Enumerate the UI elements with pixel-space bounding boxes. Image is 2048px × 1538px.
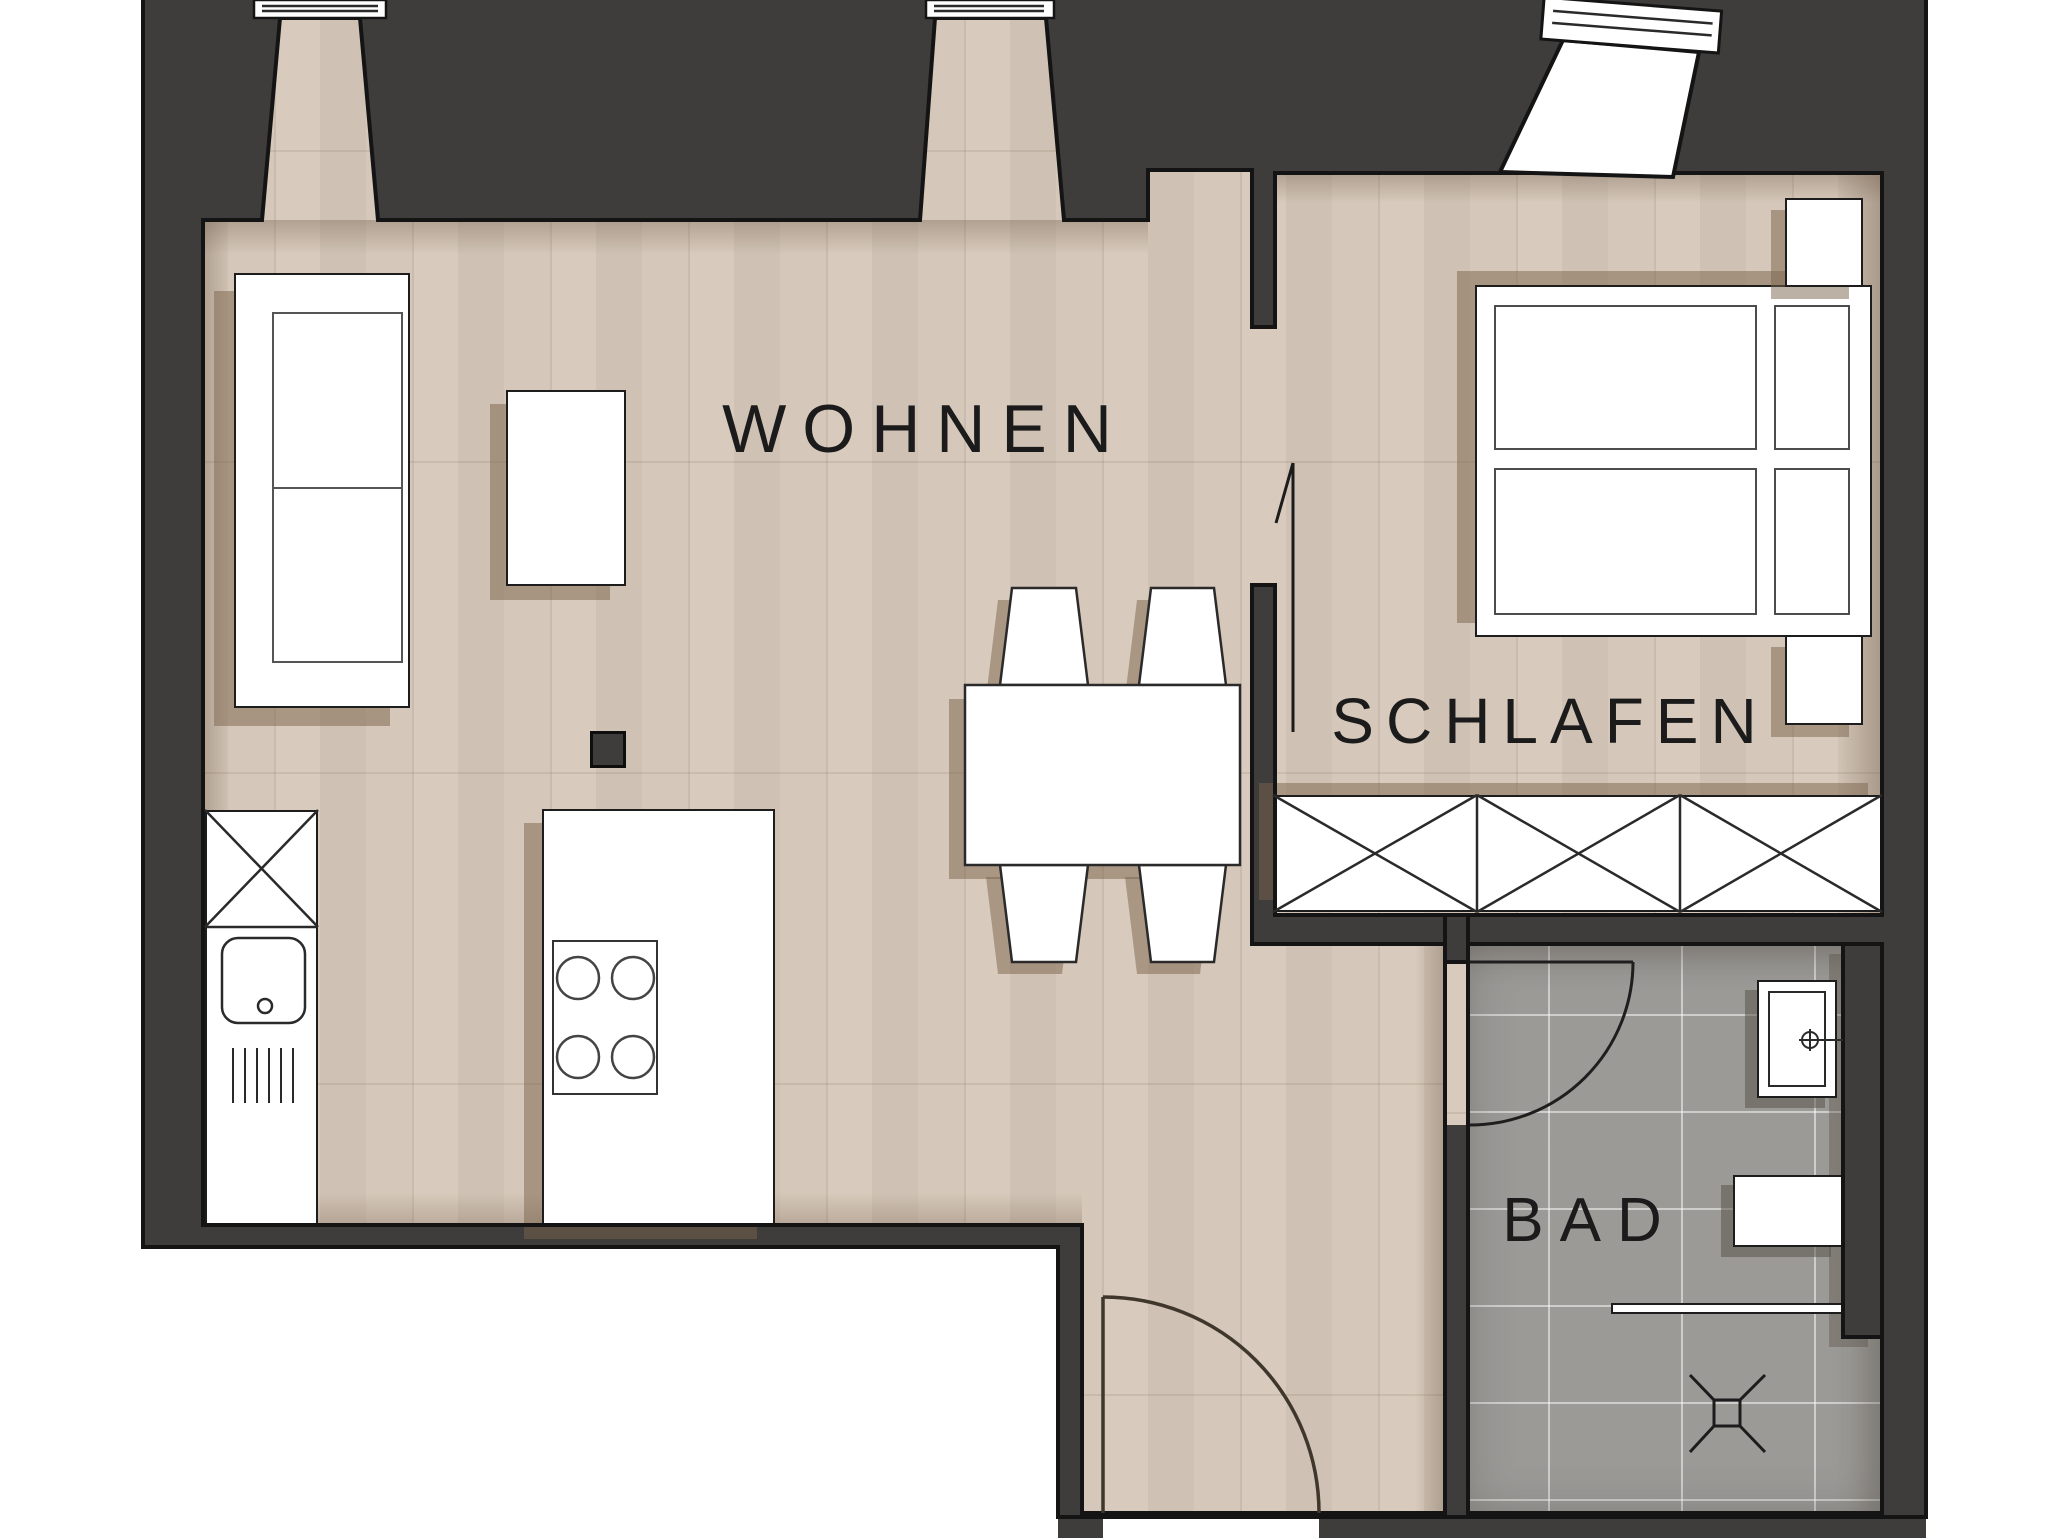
bath-pier-outline (1843, 944, 1882, 1337)
window-icon (254, 0, 386, 18)
room-label-bath: BAD (1502, 1190, 1677, 1252)
window-icon (926, 0, 1054, 18)
wardrobe-x-symbol (1273, 795, 1882, 912)
chair (1000, 865, 1088, 962)
chair (1139, 588, 1226, 685)
door-swing-icon (1470, 962, 1633, 1125)
dining-set (949, 588, 1240, 974)
bath-door-stub-outline (1445, 915, 1468, 962)
sliding-door-icon (1276, 463, 1293, 732)
dining-table (965, 685, 1240, 865)
chair (1000, 588, 1088, 685)
stove-burners (557, 957, 654, 1078)
floor-plan: WOHNEN SCHLAFEN BAD (0, 0, 2048, 1538)
washbasin-detail (1769, 992, 1843, 1086)
drainer-lines (233, 1048, 293, 1103)
chair (1139, 865, 1226, 962)
room-label-bedroom: SCHLAFEN (1331, 689, 1768, 753)
linework-layer (0, 0, 2048, 1538)
room-label-living: WOHNEN (722, 395, 1128, 463)
floor-drain-icon (1690, 1375, 1765, 1452)
door-swing-icon (1103, 1297, 1319, 1513)
fridge-x-symbol (205, 810, 318, 927)
window-bay-bedroom (1500, 0, 1722, 177)
sink (222, 938, 305, 1103)
